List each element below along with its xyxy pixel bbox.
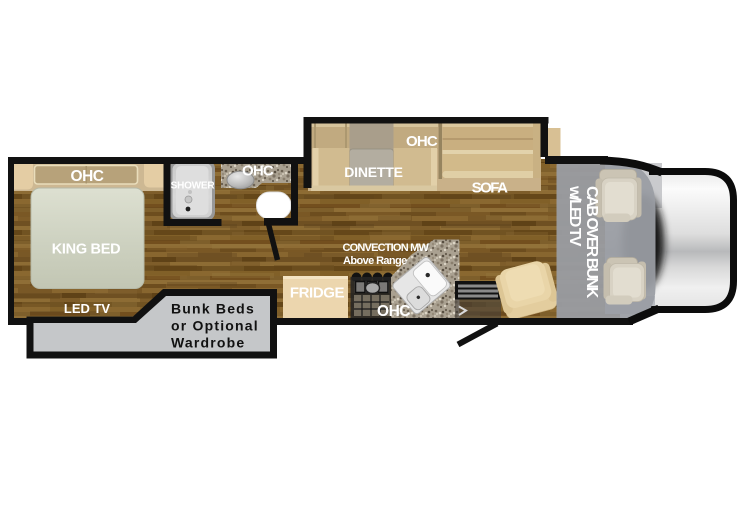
svg-text:Above Range: Above Range xyxy=(343,255,407,267)
svg-text:SOFA: SOFA xyxy=(472,180,509,197)
svg-text:Bunk Beds: Bunk Beds xyxy=(171,301,255,317)
svg-text:Wardrobe: Wardrobe xyxy=(171,335,245,351)
svg-text:OHC: OHC xyxy=(406,133,438,150)
svg-text:LED TV: LED TV xyxy=(64,301,111,316)
svg-text:or Optional: or Optional xyxy=(171,318,259,334)
svg-text:OHC: OHC xyxy=(377,303,410,320)
svg-text:DINETTE: DINETTE xyxy=(344,164,403,180)
svg-text:OHC: OHC xyxy=(71,168,104,185)
svg-text:OHC: OHC xyxy=(242,163,274,180)
svg-text:FRIDGE: FRIDGE xyxy=(290,285,345,302)
svg-text:KING BED: KING BED xyxy=(52,242,121,258)
svg-text:CONVECTION MW: CONVECTION MW xyxy=(343,242,430,254)
svg-text:SHOWER: SHOWER xyxy=(171,181,216,192)
